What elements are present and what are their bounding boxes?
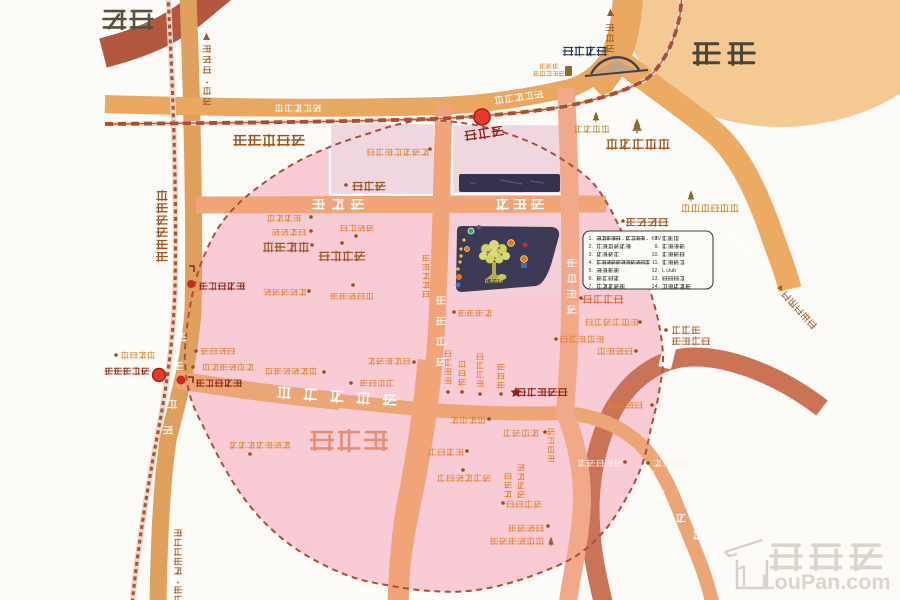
svg-text:9.: 9.: [655, 244, 660, 250]
svg-text:2.: 2.: [589, 244, 594, 250]
svg-text:3.: 3.: [589, 252, 594, 258]
svg-text:6.: 6.: [589, 276, 594, 282]
svg-text:1.: 1.: [589, 236, 594, 242]
svg-text:4.: 4.: [589, 260, 594, 266]
svg-text:L club: L club: [662, 268, 676, 274]
svg-text:LouPan.com: LouPan.com: [761, 570, 890, 594]
svg-text:14.: 14.: [652, 284, 660, 290]
svg-text:7.: 7.: [589, 284, 594, 290]
svg-text:10.: 10.: [652, 252, 660, 258]
svg-text:13.: 13.: [652, 276, 660, 282]
svg-text:12.: 12.: [652, 268, 660, 274]
svg-text:5.: 5.: [589, 268, 594, 274]
svg-text:8.: 8.: [655, 236, 660, 242]
svg-text:11.: 11.: [652, 260, 659, 266]
